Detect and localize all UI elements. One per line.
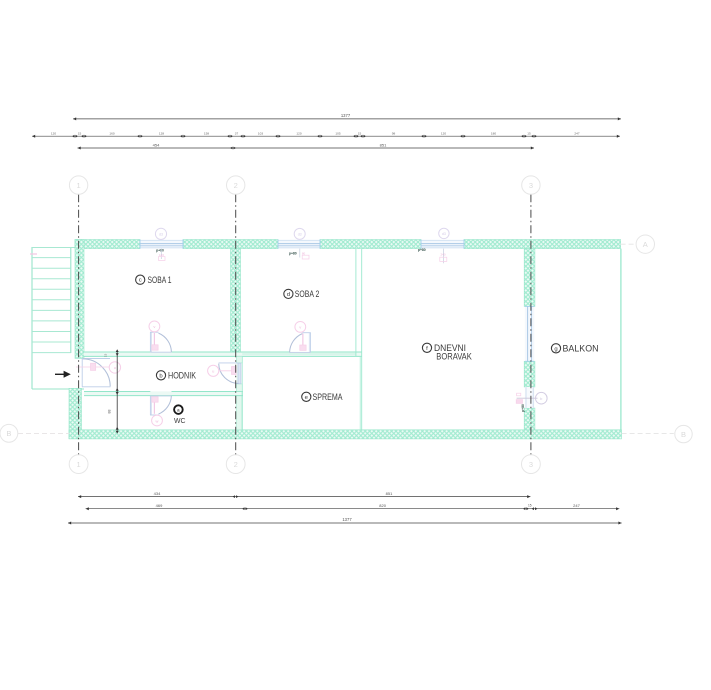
svg-text:247: 247: [574, 131, 579, 135]
svg-text:37: 37: [235, 131, 239, 135]
svg-text:d3: d3: [298, 233, 302, 237]
svg-text:88: 88: [108, 410, 112, 414]
svg-text:d3: d3: [442, 232, 446, 236]
svg-text:d3: d3: [159, 233, 163, 237]
svg-text:u: u: [212, 369, 214, 374]
svg-text:HODNIK: HODNIK: [168, 371, 196, 381]
svg-text:SOBA 1: SOBA 1: [148, 275, 172, 285]
svg-text:851: 851: [386, 491, 393, 496]
svg-text:2: 2: [234, 460, 238, 469]
svg-text:120: 120: [296, 131, 301, 135]
svg-text:1377: 1377: [341, 113, 351, 118]
svg-text:98: 98: [392, 131, 396, 135]
svg-text:15: 15: [528, 503, 532, 507]
svg-text:c: c: [139, 278, 142, 284]
svg-text:105: 105: [335, 131, 340, 135]
svg-text:WC: WC: [174, 418, 186, 425]
svg-text:120: 120: [441, 131, 446, 135]
svg-text:BALKON: BALKON: [563, 344, 599, 354]
svg-text:80: 80: [302, 251, 306, 255]
svg-text:1: 1: [77, 460, 81, 469]
svg-text:240: 240: [440, 253, 445, 257]
svg-text:820: 820: [379, 503, 386, 508]
svg-text:120: 120: [51, 131, 56, 135]
svg-text:158: 158: [204, 131, 209, 135]
svg-text:p+80: p+80: [289, 251, 297, 255]
svg-text:p+80: p+80: [521, 404, 525, 412]
svg-text:454: 454: [153, 142, 160, 147]
svg-text:15: 15: [103, 353, 107, 357]
svg-text:3: 3: [529, 181, 533, 190]
svg-text:d: d: [287, 292, 290, 298]
svg-text:BORAVAK: BORAVAK: [436, 352, 472, 362]
svg-text:g: g: [554, 346, 557, 352]
svg-text:15: 15: [527, 131, 531, 135]
svg-text:180: 180: [491, 131, 496, 135]
svg-text:15: 15: [358, 131, 362, 135]
svg-text:851: 851: [380, 142, 387, 147]
svg-text:1377: 1377: [342, 517, 352, 522]
svg-text:A: A: [643, 240, 648, 249]
svg-text:3: 3: [529, 460, 533, 469]
svg-text:469: 469: [156, 503, 163, 508]
svg-text:247: 247: [573, 503, 580, 508]
svg-text:v: v: [299, 325, 301, 330]
svg-text:SPREMA: SPREMA: [313, 392, 343, 402]
svg-text:SOBA 2: SOBA 2: [295, 289, 320, 299]
svg-text:p+80: p+80: [418, 248, 426, 252]
svg-text:128: 128: [159, 131, 164, 135]
svg-text:15: 15: [78, 131, 82, 135]
svg-text:160: 160: [109, 131, 114, 135]
svg-text:B: B: [681, 430, 686, 439]
svg-text:2: 2: [234, 181, 238, 190]
svg-text:w: w: [156, 418, 159, 423]
svg-text:p+80: p+80: [156, 248, 164, 252]
svg-text:v: v: [153, 324, 155, 329]
svg-text:1: 1: [77, 181, 81, 190]
svg-text:u: u: [114, 365, 116, 370]
svg-text:B: B: [6, 429, 11, 438]
svg-text:103: 103: [258, 131, 263, 135]
svg-text:434: 434: [154, 491, 161, 496]
